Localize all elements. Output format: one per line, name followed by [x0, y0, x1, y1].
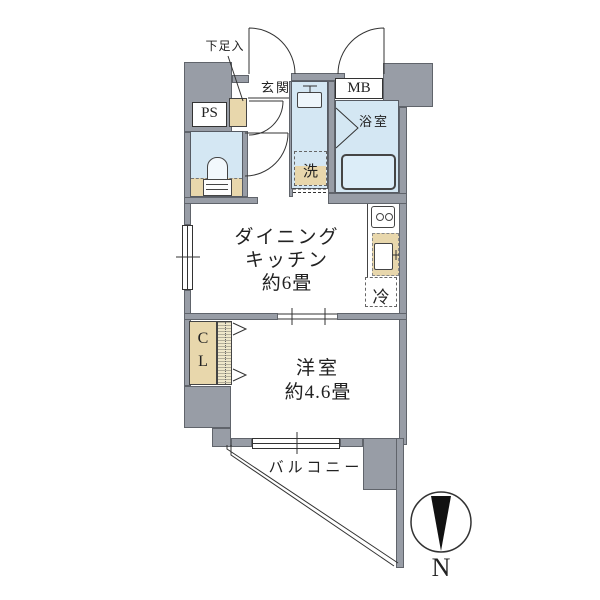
western-room-label: 洋室 約4.6畳 [243, 357, 393, 405]
bathroom-label: 浴室 [350, 111, 398, 130]
wall-hall-bottom [184, 197, 258, 204]
balcony-label: バルコニー [258, 456, 374, 477]
dining-kitchen-label: ダイニング キッチン 約6畳 [212, 226, 362, 295]
window-left [182, 225, 193, 290]
wall-entry-left [232, 75, 249, 83]
wall-bottom-left-block [184, 386, 231, 428]
floor-plan: 下足入 玄関 PS MB 浴室 洗 ダイニング キッチン 約6畳 冷 C L 洋… [0, 0, 600, 600]
closet-line2: L [189, 350, 217, 373]
stove-icon [371, 206, 395, 228]
wall-dk-west-left [184, 313, 278, 320]
closet-arrow-icon [233, 323, 246, 335]
compass-north-label: N [427, 553, 455, 583]
dk-line3: 約6畳 [212, 272, 362, 295]
laundry-label: 洗 [294, 160, 327, 181]
kitchen-counter-line [367, 204, 368, 277]
western-room-line1: 洋室 [243, 357, 393, 381]
western-room-line2: 約4.6畳 [243, 381, 393, 405]
toilet-door-arc [245, 133, 288, 176]
pipe-space-label: PS [192, 105, 227, 122]
compass-circle [411, 492, 471, 552]
north-arrow-icon [431, 496, 451, 551]
wall-right [399, 107, 407, 445]
bathtub-icon [341, 154, 396, 190]
kitchen-sink-icon [374, 243, 393, 270]
washroom-sliding-door [293, 189, 328, 193]
closet-label: C L [189, 327, 217, 373]
refrigerator-label: 冷 [365, 283, 397, 308]
wall-west-bottom-right [340, 438, 363, 447]
wall-bottom-left-step [212, 428, 231, 447]
shoe-cabinet-box [229, 98, 247, 127]
opening-dk-west [278, 313, 337, 320]
wall-washroom-bath [328, 81, 335, 193]
entrance-door-arc [249, 28, 295, 74]
wall-west-bottom-left [231, 438, 252, 447]
shoe-cabinet-door-arc [249, 101, 283, 135]
shoe-cabinet-label: 下足入 [203, 37, 247, 54]
closet-line1: C [189, 327, 217, 350]
toilet-tank-icon [203, 179, 232, 196]
wall-bath-bottom [328, 193, 407, 204]
window-balcony [252, 438, 340, 449]
entrance-label: 玄関 [254, 77, 298, 96]
closet-door-hatch [217, 321, 232, 385]
meter-box-door-arc [338, 28, 384, 74]
dk-line2: キッチン [212, 249, 362, 272]
dk-line1: ダイニング [212, 226, 362, 249]
washbasin-icon [297, 92, 322, 108]
wall-dk-west-right [337, 313, 407, 320]
wall-balcony-right-strip [396, 438, 404, 568]
meter-box-label: MB [335, 80, 383, 97]
